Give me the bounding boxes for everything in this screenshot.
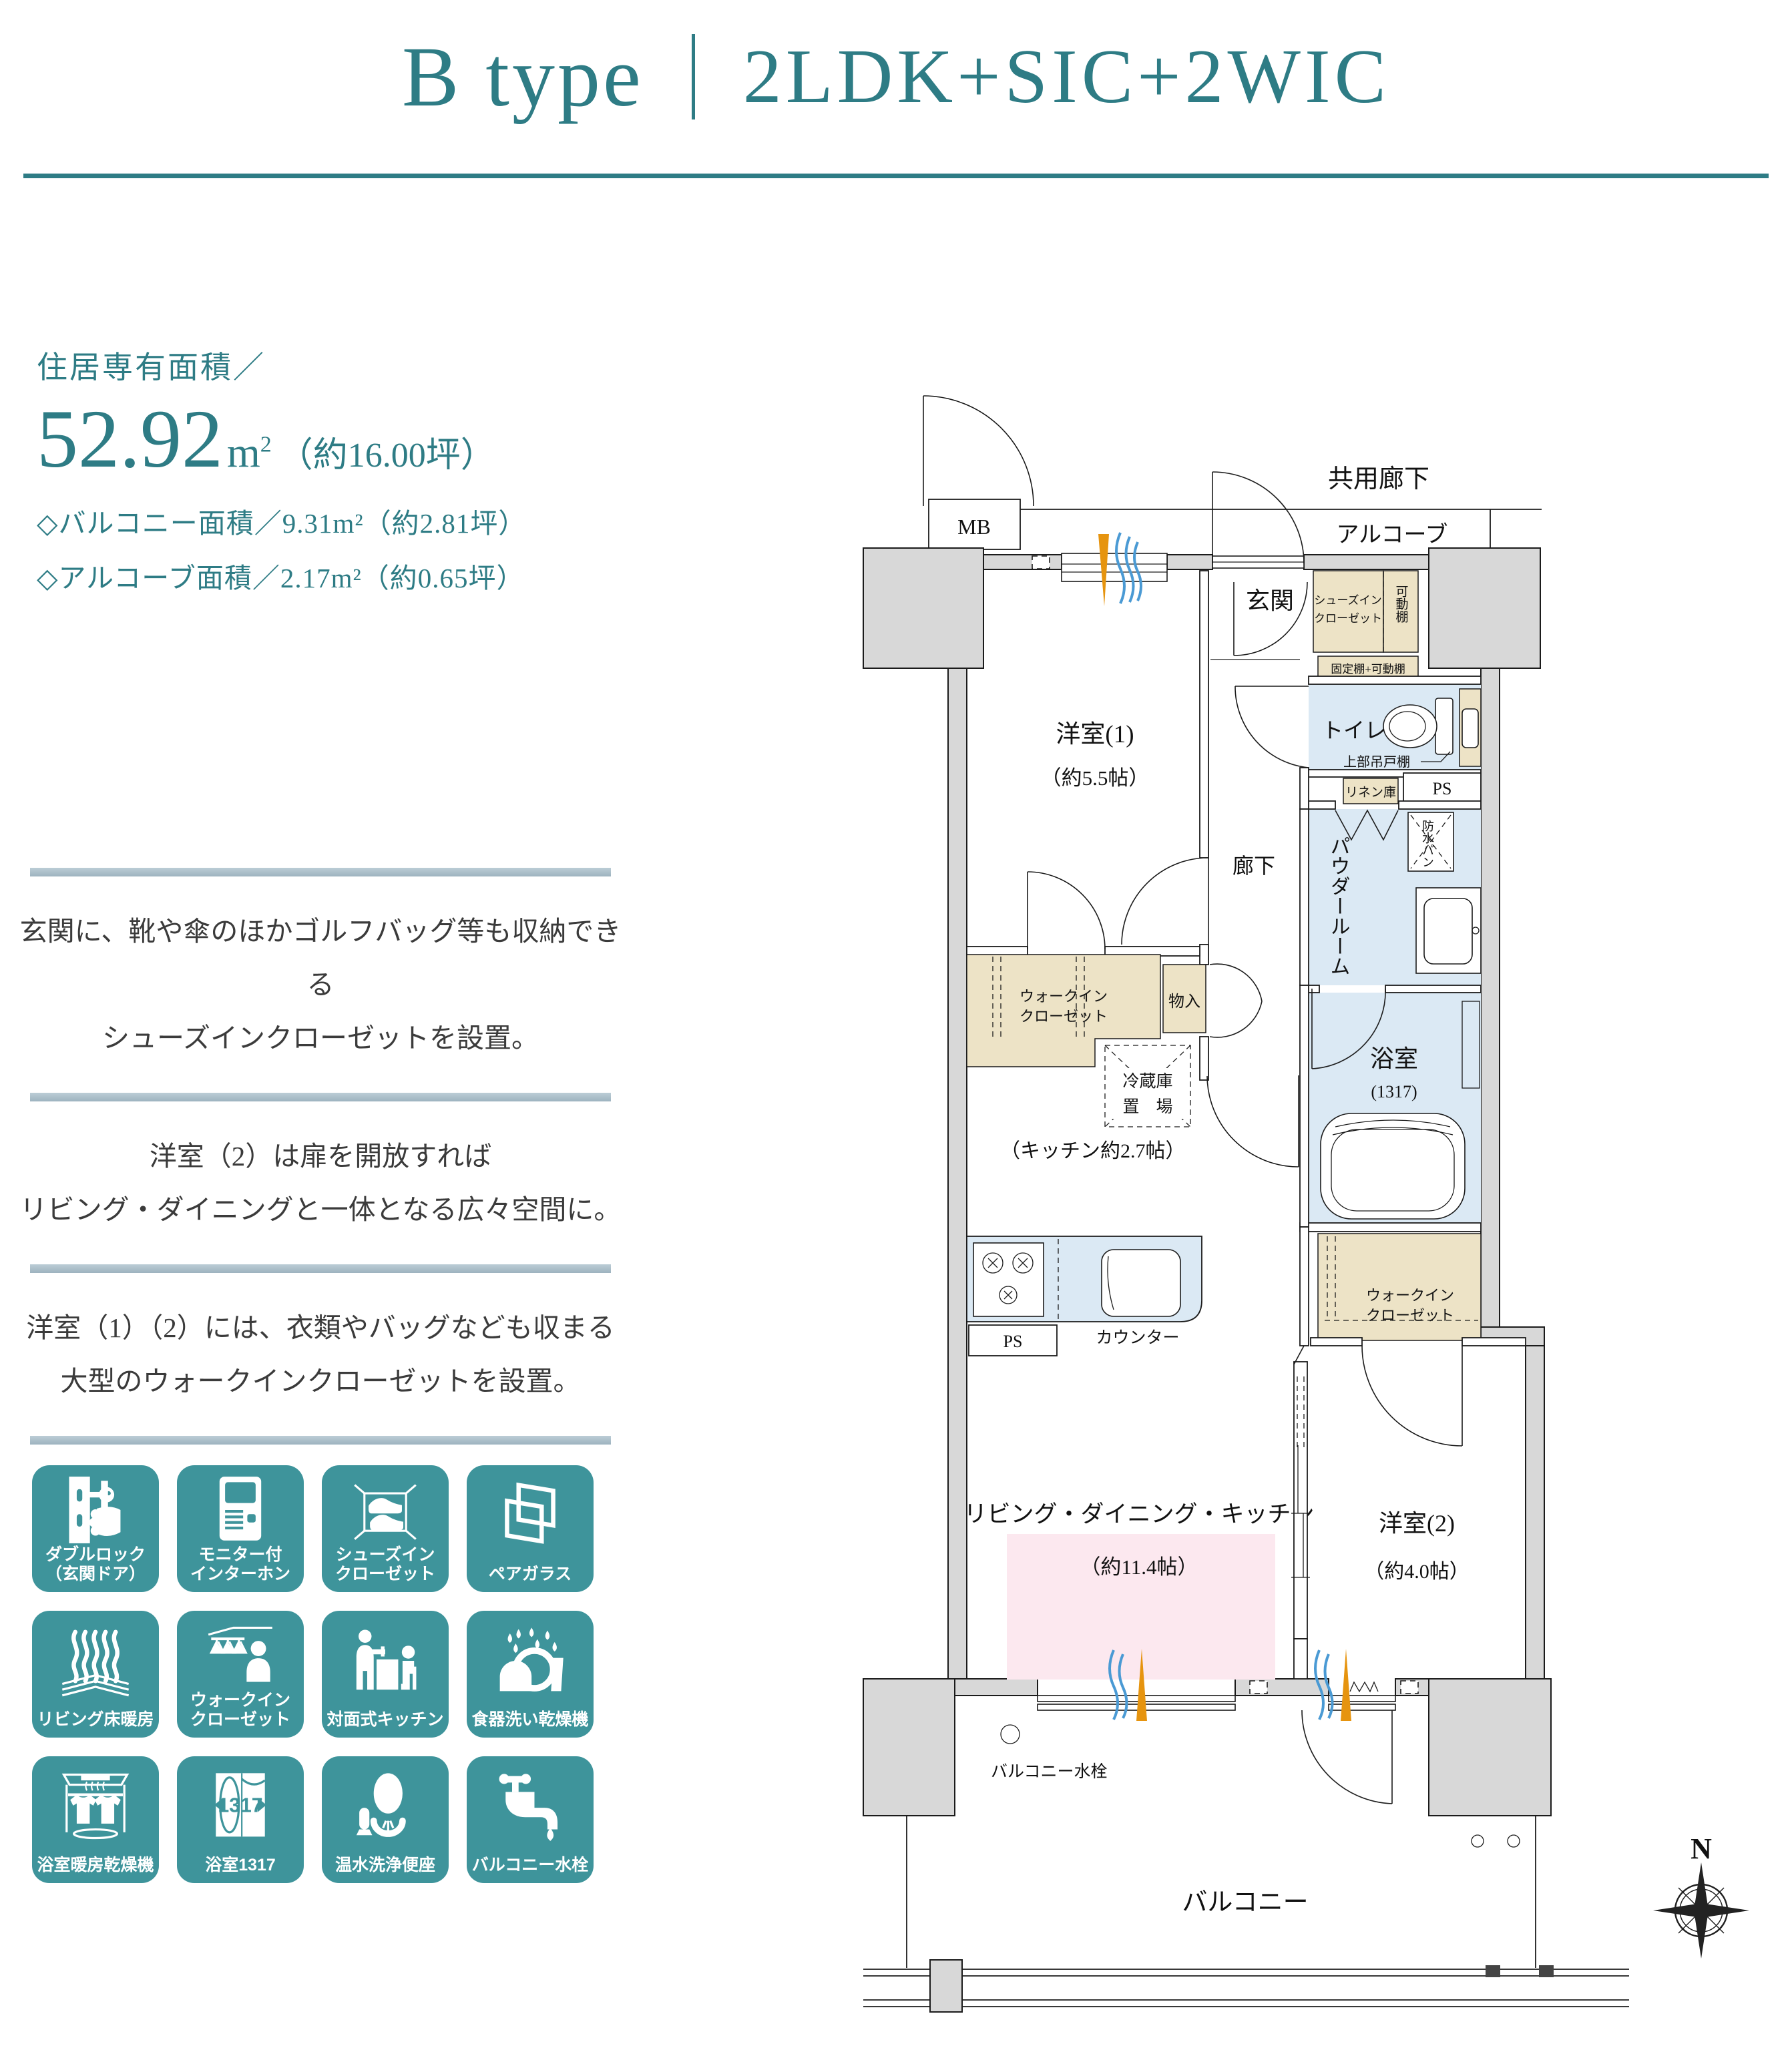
ldk-label: リビング・ダイニング・キッチン [963, 1501, 1314, 1527]
sic-label-2: クローゼット [1314, 612, 1382, 625]
fridge-label-1: 冷蔵庫 [1122, 1072, 1172, 1091]
type-title: B type [402, 28, 644, 126]
amenity-bath-1317: 1317 浴室1317 [177, 1756, 304, 1883]
genkan-label: 玄関 [1246, 587, 1294, 614]
alcove-label: アルコーブ [1337, 522, 1448, 547]
bedroom-1: 洋室(1) （約5.5帖） [967, 720, 1208, 956]
common-corridor: 共用廊下 アルコーブ [1020, 465, 1542, 555]
corridor-label: 共用廊下 [1328, 465, 1429, 493]
slit-window-top [1062, 533, 1167, 606]
bath-size-label: (1317) [1371, 1082, 1417, 1101]
divider-bar [30, 868, 611, 876]
amenity-counter-kitchen: 対面式キッチン [322, 1611, 449, 1738]
hallway: 廊下 [1200, 571, 1309, 1346]
entrance: 玄関 [1210, 472, 1307, 660]
counter-kitchen-icon [322, 1615, 449, 1707]
amenity-walk-in-closet: ウォークインクローゼット [177, 1611, 304, 1738]
toilet-label: トイレ [1322, 718, 1386, 742]
fridge-label-2: 置 場 [1122, 1097, 1172, 1116]
airflow-arrow-icon [1341, 1649, 1351, 1721]
feature-text-section: 玄関に、靴や傘のほかゴルフバッグ等も収納できるシューズインクローゼットを設置。 … [17, 868, 624, 1445]
sliding-partition [1291, 1346, 1310, 1679]
double-lock-icon [32, 1469, 159, 1551]
ps2-label: PS [1003, 1332, 1023, 1351]
hallway-label: 廊下 [1233, 854, 1275, 878]
linen-ps: リネン庫 PS [1343, 773, 1481, 804]
area-unit: m2 [227, 428, 272, 477]
title-divider [692, 34, 695, 119]
amenity-shoes-in-closet: シューズインクローゼット [322, 1465, 449, 1592]
feature-block-2: 洋室（2）は扉を開放すればリビング・ダイニングと一体となる広々空間に。 [17, 1129, 624, 1236]
shoes-closet-icon [322, 1469, 449, 1551]
bath-label: 浴室 [1370, 1045, 1418, 1072]
sic-label-1: シューズイン [1314, 594, 1381, 607]
wic2-label-1: ウォークイン [1366, 1287, 1454, 1304]
divider-bar [30, 1093, 611, 1101]
ldk-size-label: （約11.4帖） [1080, 1555, 1198, 1579]
balcony-area-line: ◇バルコニー面積／9.31m²（約2.81坪） [37, 501, 611, 541]
meter-box: MB [923, 396, 1034, 549]
floor-heating-icon [32, 1615, 159, 1707]
fixed-shelf-label: 固定棚+可動棚 [1331, 663, 1405, 676]
shoes-in-closet: シューズイン クローゼット 可動棚 固定棚+可動棚 [1313, 571, 1418, 680]
powder-room-label: パウダールーム [1327, 836, 1349, 976]
wic2-label-2: クローゼット [1366, 1307, 1454, 1324]
bedroom-2: 洋室(2) （約4.0帖） [1311, 1338, 1526, 1583]
counter-label: カウンター [1096, 1329, 1179, 1347]
amenity-pair-glass: ペアガラス [467, 1465, 594, 1592]
page-header: B type 2LDK+SIC+2WIC [0, 0, 1792, 154]
mb-label: MB [957, 515, 991, 539]
bathroom-dryer-icon [32, 1760, 159, 1852]
floor-plan: 共用廊下 アルコーブ MB [855, 374, 1792, 2054]
toilet-tank [1435, 698, 1453, 754]
amenity-washlet: 温水洗浄便座 [322, 1756, 449, 1883]
wic1-label-2: クローゼット [1020, 1008, 1108, 1025]
balcony-label: バルコニー [1182, 1888, 1308, 1916]
dishwasher-icon [467, 1615, 594, 1707]
balcony-faucet-label: バルコニー水栓 [991, 1762, 1108, 1781]
toilet-room: トイレ 上部吊戸棚 [1235, 676, 1481, 777]
bedroom2-size-label: （約4.0帖） [1364, 1561, 1470, 1583]
amenity-double-lock: ダブルロック（玄関ドア） [32, 1465, 159, 1592]
alcove-area-line: ◇アルコーブ面積／2.17m²（約0.65坪） [37, 555, 611, 595]
intercom-icon [177, 1469, 304, 1551]
amenity-bathroom-dryer: 浴室暖房乾燥機 [32, 1756, 159, 1883]
divider-bar [30, 1436, 611, 1445]
amenity-grid: ダブルロック（玄関ドア） モニター付インターホン [32, 1465, 594, 1883]
divider-bar [30, 1264, 611, 1273]
balcony-faucet-icon [467, 1760, 594, 1852]
walk-in-closet-icon [177, 1615, 304, 1696]
amenity-floor-heating: リビング床暖房 [32, 1611, 159, 1738]
waterproof-pan-label: 防水パン [1421, 820, 1434, 868]
sink [1102, 1250, 1180, 1316]
bathroom: 浴室 (1317) [1300, 985, 1481, 1232]
walk-in-closet-2: ウォークイン クローゼット [1318, 1234, 1481, 1340]
header-rule [23, 174, 1769, 178]
washlet-icon [322, 1760, 449, 1852]
amenity-balcony-faucet: バルコニー水栓 [467, 1756, 594, 1883]
linen-label: リネン庫 [1345, 785, 1396, 800]
ps-label: PS [1433, 779, 1452, 798]
airflow-wave-icon [1116, 533, 1141, 603]
bath-1317-icon: 1317 [177, 1760, 304, 1852]
walk-in-closet-1: ウォークイン クローゼット 物入 [967, 955, 1262, 1067]
bedroom1-size-label: （約5.5帖） [1041, 766, 1150, 790]
area-tsubo: （約16.00坪） [278, 427, 495, 477]
movable-shelf-label: 可動棚 [1394, 585, 1409, 623]
powder-room: パウダールーム 防水パン [1309, 801, 1481, 985]
bedroom1-label: 洋室(1) [1056, 720, 1134, 748]
area-value-row: 52.92 m2 （約16.00坪） [37, 398, 611, 481]
storage-label: 物入 [1168, 993, 1200, 1011]
area-value: 52.92 [37, 398, 223, 481]
amenity-dishwasher: 食器洗い乾燥機 [467, 1611, 594, 1738]
layout-title: 2LDK+SIC+2WIC [743, 33, 1390, 121]
brochure-page: B type 2LDK+SIC+2WIC 住居専有面積／ 52.92 m2 （約… [0, 0, 1792, 2054]
amenity-monitor-intercom: モニター付インターホン [177, 1465, 304, 1592]
pair-glass-icon [467, 1469, 594, 1561]
area-info: 住居専有面積／ 52.92 m2 （約16.00坪） ◇バルコニー面積／9.31… [37, 343, 611, 595]
ldk: リビング・ダイニング・キッチン （約11.4帖） [963, 1501, 1314, 1680]
compass-north-label: N [1691, 1832, 1712, 1865]
kitchen: 冷蔵庫 置 場 （キッチン約2.7帖） カウンター PS [967, 1045, 1202, 1356]
upper-cabinet-label: 上部吊戸棚 [1343, 754, 1410, 770]
compass-rose: N [1653, 1832, 1749, 1959]
area-heading: 住居専有面積／ [37, 343, 611, 387]
bedroom2-label: 洋室(2) [1379, 1510, 1455, 1537]
kitchen-size-label: （キッチン約2.7帖） [1000, 1140, 1186, 1162]
feature-block-1: 玄関に、靴や傘のほかゴルフバッグ等も収納できるシューズインクローゼットを設置。 [17, 905, 624, 1065]
balcony-faucet-symbol [1001, 1725, 1020, 1744]
stove [973, 1243, 1044, 1316]
bath-1317-number: 1317 [218, 1795, 262, 1817]
wic1-label-1: ウォークイン [1020, 988, 1108, 1005]
feature-block-3: 洋室（1）（2）には、衣類やバッグなども収まる大型のウォークインクローゼットを設… [17, 1301, 624, 1408]
